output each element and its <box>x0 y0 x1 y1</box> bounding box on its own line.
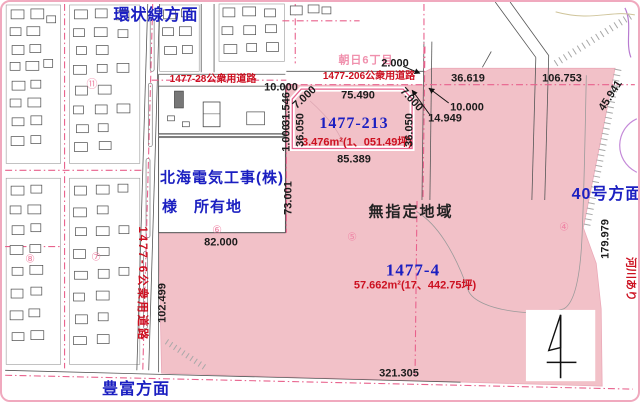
dim-85389: 85.389 <box>337 155 371 166</box>
dim-106753: 106.753 <box>542 74 582 85</box>
label-road-1477-206: 1477-206公衆用道路 <box>323 72 415 82</box>
label-road-1477-28: 1477-28公衆用道路 <box>170 75 257 85</box>
label-parcel-1477-4-id: 1477-4 <box>386 262 440 279</box>
dim-179979: 179.979 <box>601 219 612 259</box>
dim-75490: 75.490 <box>341 91 375 102</box>
label-direction-right: 40号方面 <box>572 187 640 203</box>
label-direction-bottom: 豊富方面 <box>102 382 170 398</box>
dim-36050-left: 36.050 <box>296 113 307 147</box>
marker-circle-4: ④ <box>559 223 569 234</box>
map-linework <box>2 2 638 400</box>
marker-circle-7: ⑦ <box>91 253 101 264</box>
label-direction-top: 環状線方面 <box>113 8 198 24</box>
marker-circle-8: ⑧ <box>25 255 35 266</box>
marker-circle-5: ⑤ <box>347 233 357 244</box>
dim-1000: 1.000 <box>282 124 293 152</box>
label-owner-name: 北海電気工事(株) <box>160 171 284 186</box>
cadastral-map: 環状線方面 豊富方面 40号方面 北海電気工事(株) 様 所有地 1477-28… <box>0 0 640 402</box>
dim-31546: 31.546 <box>282 92 293 126</box>
label-owner-suffix: 様 所有地 <box>162 200 242 215</box>
dim-36619: 36.619 <box>451 74 485 85</box>
label-parcel-1477-213-area: 3.476m²(1、051.49坪) <box>302 138 412 149</box>
label-river-note: 河川あり <box>625 257 636 301</box>
dim-36050-right: 36.050 <box>405 113 416 147</box>
label-road-1477-6: 1477-6公衆用道路 <box>135 226 147 341</box>
dim-82000: 82.000 <box>204 238 238 249</box>
dim-321305: 321.305 <box>379 369 419 380</box>
dim-14949: 14.949 <box>428 114 462 125</box>
label-parcel-1477-213-id: 1477-213 <box>319 116 388 132</box>
label-zone: 無指定地域 <box>368 205 453 220</box>
dim-2000: 2.000 <box>381 59 409 70</box>
dim-73001: 73.001 <box>284 181 295 215</box>
north-arrow-icon <box>526 310 595 381</box>
marker-circle-6: ⑥ <box>212 226 222 237</box>
marker-circle-11: ⑪ <box>87 80 98 91</box>
label-parcel-1477-4-area: 57.662m²(17、442.75坪) <box>354 281 476 292</box>
dim-102499: 102.499 <box>158 283 169 323</box>
